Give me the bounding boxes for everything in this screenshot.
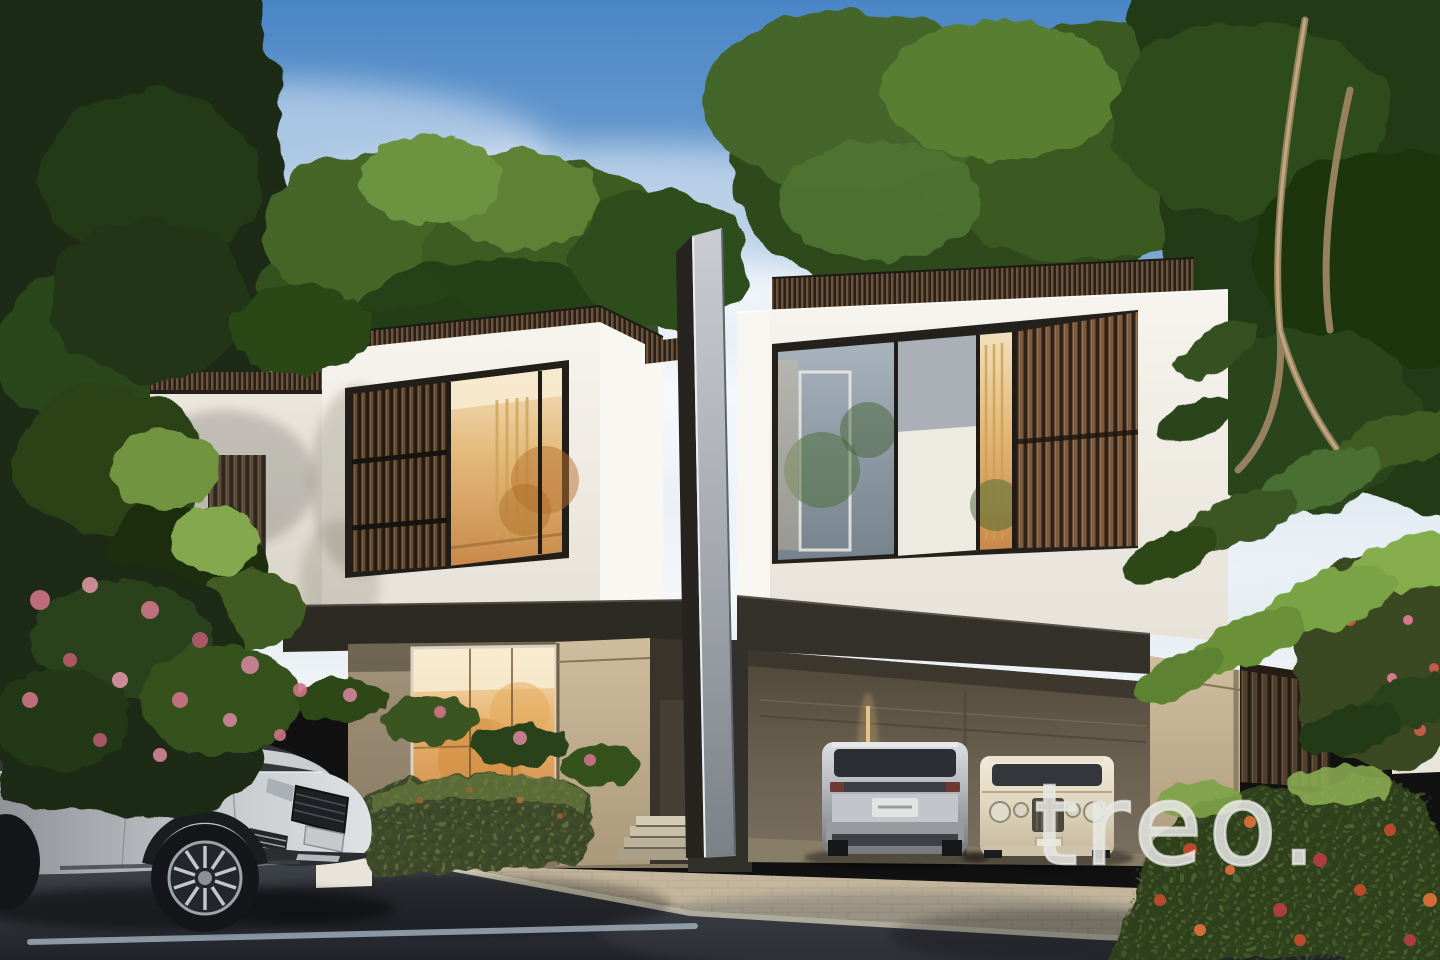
window-glass-left bbox=[778, 342, 896, 560]
window-glass bbox=[449, 368, 579, 566]
right-villa-window-band bbox=[772, 310, 1138, 564]
hedge-left bbox=[359, 773, 594, 876]
window-wall-panel-top bbox=[896, 335, 978, 434]
left-villa-window bbox=[345, 360, 579, 578]
entry-recess-glow bbox=[660, 700, 686, 820]
right-villa bbox=[737, 258, 1228, 674]
architectural-rendering: treo. bbox=[0, 0, 1440, 960]
scene-illustration bbox=[0, 0, 1440, 960]
window-wall-panel bbox=[896, 426, 978, 556]
window-slats-right bbox=[1014, 312, 1138, 548]
bentley-carport bbox=[962, 756, 1134, 869]
window-slats bbox=[352, 382, 449, 572]
range-rover-carport bbox=[804, 742, 988, 869]
